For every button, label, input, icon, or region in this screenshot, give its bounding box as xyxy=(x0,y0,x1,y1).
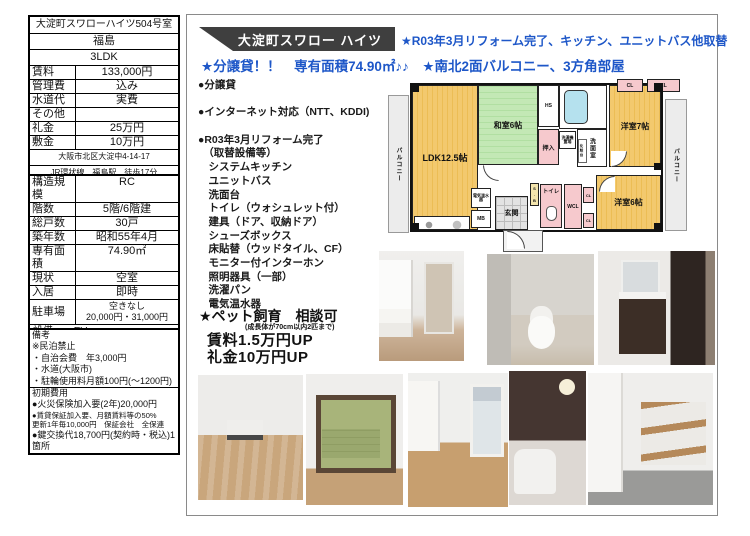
remark-line: ・駐輪使用料月額100円(〜1200円) xyxy=(30,376,178,388)
table-row: 水道代実費 xyxy=(30,93,178,107)
parking-value: 空きなし 20,000円・31,000円 xyxy=(76,300,178,324)
table-row: 構造規模RC xyxy=(30,176,178,202)
sb-label: S.B xyxy=(532,186,537,204)
tatami-shape xyxy=(322,429,380,458)
closet-top-1: CL xyxy=(617,79,643,92)
row-value: 昭和55年4月 xyxy=(76,231,178,244)
window-shape xyxy=(470,384,504,457)
parking-availability: 空きなし xyxy=(109,301,145,311)
row-label: 礼金 xyxy=(30,122,76,135)
headline-area: ★分譲貸！！ 専有面積74.90㎡♪♪ ★南北2面バルコニー、3方角部屋 xyxy=(201,55,625,75)
row-label: 賃料 xyxy=(30,66,76,79)
row-value: 10万円 xyxy=(76,136,178,149)
remarks-table: 備考 ※民泊禁止 ・自治会費 年3,000円 ・水道(大阪市) ・駐輪使用料月額… xyxy=(28,328,180,455)
yoshitsu7-label: 洋室7帖 xyxy=(621,121,649,132)
toilet-bowl-shape xyxy=(528,316,556,349)
vanity-unit: 化粧台 xyxy=(578,139,587,163)
feature-line: （取替設備等） xyxy=(198,147,388,161)
feature-line: モニター付インターホン xyxy=(198,257,388,271)
ldk-label: LDK12.5帖 xyxy=(422,151,467,164)
initial-cost-line: ●賃貸保証加入要、月額賃料等の50% xyxy=(30,411,178,421)
address: 大阪市北区大淀中4-14-17 xyxy=(30,149,178,165)
row-value: 実費 xyxy=(76,94,178,107)
listing-frame: 大淀町スワロー ハイツ ★R03年3月リフォーム完了、キッチン、ユニットバス他取… xyxy=(186,14,718,516)
row-label: 管理費 xyxy=(30,80,76,93)
feature-line: 洗面台 xyxy=(198,189,388,203)
senmen-label: 洗面室 xyxy=(588,138,597,159)
row-label: 専有面積 xyxy=(30,245,76,271)
row-value: 30戸 xyxy=(76,217,178,230)
storage-wall-shape xyxy=(588,373,623,492)
balcony-right: バルコニー xyxy=(665,99,687,231)
floor-plan: バルコニー LDK12.5帖 和室6帖 HS 押入 洗濯機置場 洗面室 化粧台 … xyxy=(387,79,697,257)
row-label: 敷金 xyxy=(30,136,76,149)
wall-block xyxy=(654,83,663,92)
bathtub-shape xyxy=(564,90,588,124)
closet-top-2: CL xyxy=(647,79,680,92)
area-row: 福島 xyxy=(30,33,178,49)
row-value: 込み xyxy=(76,80,178,93)
row-value: 即時 xyxy=(76,286,178,299)
room-genkan: 玄関 xyxy=(495,196,528,230)
table-row: 築年数昭和55年4月 xyxy=(30,230,178,244)
genkan-label: 玄関 xyxy=(505,208,519,218)
row-value: 74.90㎡ xyxy=(76,245,178,271)
row-label: 入居 xyxy=(30,286,76,299)
meter-box: MB xyxy=(471,210,491,228)
remark-line: ・水道(大阪市) xyxy=(30,364,178,376)
cl-label: CL xyxy=(586,218,591,223)
row-label: 階数 xyxy=(30,203,76,216)
feature-line: ●インターネット対応（NTT、KDDI) xyxy=(198,106,388,120)
hs-label: HS xyxy=(545,103,552,109)
photo-storage-shelves xyxy=(588,373,713,505)
property-name: 大淀町スワローハイツ504号室 xyxy=(30,17,178,33)
row-value: 25万円 xyxy=(76,122,178,135)
wood-floor-shape xyxy=(198,435,303,500)
table-row: 現状空室 xyxy=(30,271,178,285)
initial-cost-title: 初期費用 xyxy=(30,387,178,399)
pet-keymoney-up: 礼金10万円UP xyxy=(207,346,309,367)
table-row: 総戸数30戸 xyxy=(30,216,178,230)
row-label: 構造規模 xyxy=(30,176,76,202)
table-row: その他 xyxy=(30,107,178,121)
wall-block xyxy=(654,163,663,170)
feature-line: ユニットバス xyxy=(198,175,388,189)
room-hs: HS xyxy=(538,85,559,127)
washitsu-label: 和室6帖 xyxy=(494,120,522,131)
row-value: 空室 xyxy=(76,272,178,285)
feature-line xyxy=(198,120,388,134)
initial-cost-line: 更新1年毎10,000円 保証会社 全保連 xyxy=(30,420,178,430)
kitchen-counter xyxy=(414,216,470,230)
remark-line: ・自治会費 年3,000円 xyxy=(30,353,178,365)
table-row: 階数5階/6階建 xyxy=(30,202,178,216)
row-label: 総戸数 xyxy=(30,217,76,230)
room-washitsu: 和室6帖 xyxy=(478,85,538,165)
counter-shape xyxy=(227,420,263,440)
row-value: RC xyxy=(76,176,178,202)
wall-block xyxy=(410,223,419,232)
toilet-bowl-shape xyxy=(546,206,557,221)
washer-label: 洗濯機置場 xyxy=(560,136,575,144)
vanity-cabinet-shape xyxy=(619,292,666,354)
room-bath xyxy=(559,85,607,129)
oshiire-label: 押入 xyxy=(542,143,554,152)
feature-line: ●分譲貸 xyxy=(198,79,388,93)
feature-line: シューズボックス xyxy=(198,230,388,244)
photo-toilet xyxy=(487,254,594,365)
toilet-wall-shape xyxy=(487,254,511,365)
balcony-left: バルコニー xyxy=(388,95,409,233)
bathroom-light-shape xyxy=(559,379,575,395)
boiler-box: 電気温水器 xyxy=(471,188,491,208)
row-label: 現状 xyxy=(30,272,76,285)
yoshitsu6-label: 洋室6帖 xyxy=(614,197,642,208)
room-oshiire: 押入 xyxy=(538,129,559,165)
kitchen-door-shape xyxy=(424,262,454,334)
table-row: 管理費込み xyxy=(30,79,178,93)
parking-price: 20,000円・31,000円 xyxy=(86,312,168,322)
row-value: 5階/6階建 xyxy=(76,203,178,216)
remarks-title: 備考 xyxy=(30,330,178,341)
storage-shelves-shape xyxy=(641,402,706,465)
bathtub-shape xyxy=(514,449,556,495)
feature-line: ●R03年3月リフォーム完了 xyxy=(198,134,388,148)
table-row: 専有面積74.90㎡ xyxy=(30,244,178,271)
feature-line: 床貼替（ウッドタイル、CF） xyxy=(198,243,388,257)
feature-line: 洗濯パン xyxy=(198,284,388,298)
layout-row: 3LDK xyxy=(30,49,178,65)
wall-block xyxy=(654,223,663,232)
photo-bathroom xyxy=(509,371,586,505)
feature-list: ●分譲貸 ●インターネット対応（NTT、KDDI) ●R03年3月リフォーム完了… xyxy=(198,79,388,312)
room-ldk: LDK12.5帖 xyxy=(412,85,478,230)
building-info-table: 構造規模RC 階数5階/6階建 総戸数30戸 築年数昭和55年4月 専有面積74… xyxy=(28,174,180,353)
initial-cost-line: ●鍵交換代18,700円(契約時・税込)1箇所 xyxy=(30,430,178,453)
parking-row: 駐車場 空きなし 20,000円・31,000円 xyxy=(30,299,178,324)
room-wcl: WCL xyxy=(564,184,582,229)
table-row: 入居即時 xyxy=(30,285,178,299)
table-row: 賃料133,000円 xyxy=(30,65,178,79)
table-row: 敷金10万円 xyxy=(30,135,178,149)
cl-label: CL xyxy=(586,193,591,198)
photo-kitchen xyxy=(379,251,464,361)
table-row: 礼金25万円 xyxy=(30,121,178,135)
property-summary-table: 大淀町スワローハイツ504号室 福島 3LDK 賃料133,000円 管理費込み… xyxy=(28,15,180,183)
row-label: 駐車場 xyxy=(30,300,76,324)
initial-cost-line: ●火災保険加入要(2年)20,000円 xyxy=(30,399,178,411)
balcony-left-label: バルコニー xyxy=(394,147,403,182)
feature-line: 建具（ドア、収納ドア） xyxy=(198,216,388,230)
closet-right-1: CL xyxy=(583,187,594,203)
kitchen-cabinet-shape xyxy=(379,260,413,337)
photo-washitsu xyxy=(306,374,403,505)
washer-space: 洗濯機置場 xyxy=(559,131,576,149)
room-toilet: トイレ xyxy=(540,184,562,228)
headline-reform: ★R03年3月リフォーム完了、キッチン、ユニットバス他取替 xyxy=(401,32,727,49)
row-value xyxy=(76,108,178,121)
wall-block xyxy=(410,83,419,92)
photo-vanity xyxy=(598,251,715,365)
mb-label: MB xyxy=(477,216,485,222)
balcony-right-label: バルコニー xyxy=(672,148,681,183)
closet-door-shape xyxy=(408,381,440,451)
feature-line: トイレ（ウォシュレット付） xyxy=(198,202,388,216)
feature-line: 照明器具（一部） xyxy=(198,271,388,285)
photo-ldk xyxy=(198,375,303,500)
row-value: 133,000円 xyxy=(76,66,178,79)
row-label: 築年数 xyxy=(30,231,76,244)
shoe-box: S.B xyxy=(530,183,539,206)
property-banner: 大淀町スワロー ハイツ xyxy=(199,27,395,51)
row-label: 水道代 xyxy=(30,94,76,107)
photo-western-room xyxy=(408,373,508,507)
boiler-label: 電気温水器 xyxy=(472,194,490,202)
wcl-label: WCL xyxy=(567,204,578,210)
closet-right-2: CL xyxy=(583,213,594,228)
row-label: その他 xyxy=(30,108,76,121)
feature-line: システムキッチン xyxy=(198,161,388,175)
cl-label: CL xyxy=(627,83,634,89)
vanity-label: 化粧台 xyxy=(580,144,585,158)
toilet-label: トイレ xyxy=(543,187,560,195)
feature-line xyxy=(198,93,388,107)
remark-line: ※民泊禁止 xyxy=(30,341,178,353)
